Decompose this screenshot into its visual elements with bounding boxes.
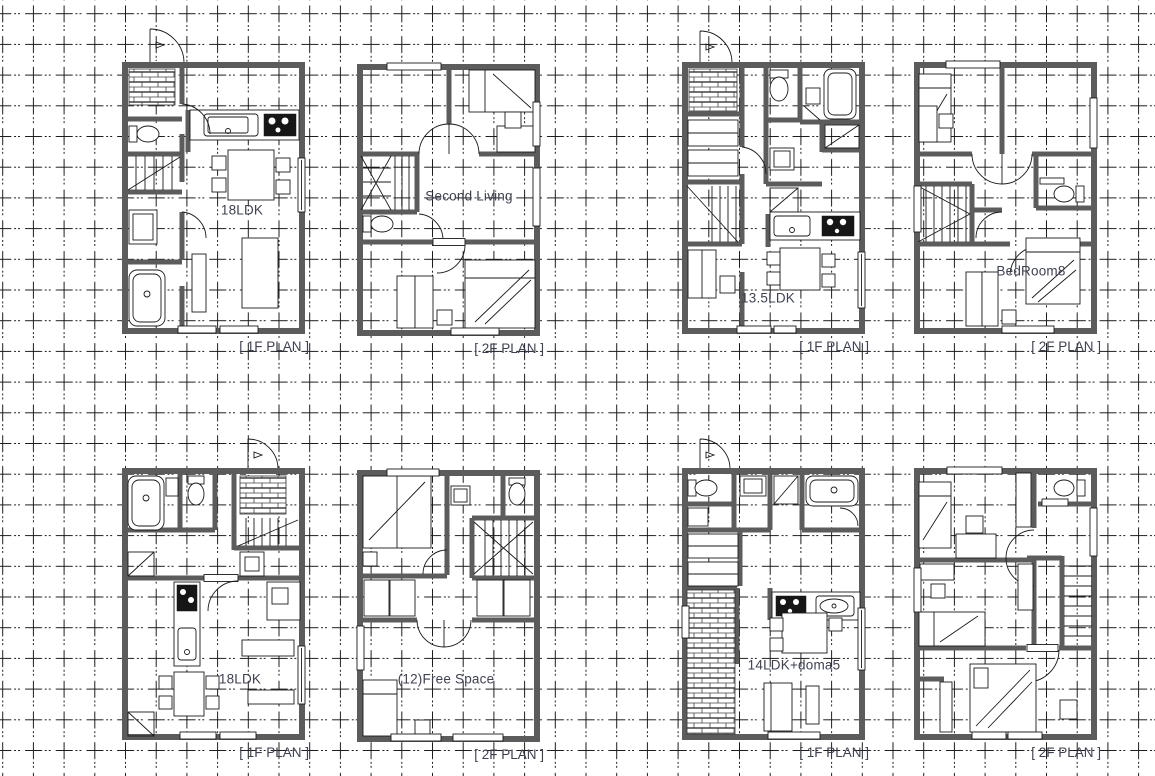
- toilet-icon: [770, 70, 788, 101]
- entry-tiles: [689, 69, 737, 111]
- kitchen-counter: [174, 582, 200, 666]
- room-label: Second Living: [425, 189, 512, 204]
- bed-icon: [919, 612, 985, 646]
- washbasin-icon: [740, 476, 766, 496]
- plan-caption: [ 1F PLAN ]: [799, 745, 869, 760]
- plan-caption: [ 1F PLAN ]: [239, 745, 309, 760]
- toilet-icon: [509, 478, 525, 505]
- closet-icon: [128, 552, 264, 576]
- room-label: 14LDK+doma5: [748, 658, 841, 673]
- closet-icon: [128, 712, 154, 736]
- floorplan-c-1f: 18LDK [ 1F PLAN ]: [122, 468, 305, 740]
- kitchen-counter: [190, 110, 299, 140]
- toilet-icon: [129, 126, 159, 142]
- floorplan-c-2f: (12)Free Space [ 2F PLAN ]: [357, 470, 540, 742]
- floorplan-d-1f: 14LDK+doma5 [ 1F PLAN ]: [682, 468, 865, 740]
- dining-table-icon: [770, 613, 842, 653]
- room-label: 18LDK: [221, 203, 263, 218]
- washbasin-icon: [129, 210, 157, 244]
- entry-tiles: [240, 476, 286, 514]
- floorplan-b-2f: BedRoom8 [ 2F PLAN ]: [914, 62, 1097, 334]
- closet-icon: [688, 534, 738, 586]
- double-doors: [419, 124, 479, 154]
- plan-caption: [ 2F PLAN ]: [474, 747, 544, 762]
- interior-doors: [423, 550, 447, 574]
- plan-caption: [ 2F PLAN ]: [1031, 745, 1101, 760]
- floorplan-drawing: [357, 470, 540, 742]
- washbasin-icon: [451, 486, 470, 505]
- closet-icon: [397, 276, 452, 328]
- toilet-icon: [188, 476, 204, 505]
- closet-icon: [774, 476, 798, 504]
- stairs-icon: [361, 156, 409, 210]
- double-doors: [972, 154, 1032, 184]
- bed-icon: [469, 70, 535, 112]
- entry-tiles: [129, 69, 175, 105]
- floorplan-a-1f: 18LDK [ 1F PLAN ]: [122, 62, 305, 334]
- doma-tiles: [687, 590, 735, 734]
- bed-icon: [363, 680, 430, 736]
- bathtub-icon: [128, 476, 178, 530]
- bathtub-icon: [804, 69, 856, 120]
- sofa-icon: [192, 238, 278, 312]
- cupboard-icon: [267, 582, 300, 620]
- floorplan-drawing: [914, 468, 1097, 740]
- toilet-icon: [1040, 178, 1084, 202]
- closet-icon: [920, 564, 1033, 610]
- dining-table-icon: [212, 150, 290, 200]
- floorplan-sheet: 18LDK [ 1F PLAN ]: [0, 0, 1155, 776]
- stove-icon: [264, 114, 296, 136]
- floorplan-drawing: [682, 468, 865, 740]
- floorplan-d-2f: [ 2F PLAN ]: [914, 468, 1097, 740]
- sofa-icon: [764, 683, 819, 731]
- stairs-icon: [918, 186, 970, 242]
- double-doors: [417, 620, 471, 647]
- plan-caption: [ 1F PLAN ]: [239, 339, 309, 354]
- stove-icon: [822, 216, 854, 236]
- stairs-icon: [238, 518, 298, 546]
- plan-caption: [ 1F PLAN ]: [799, 339, 869, 354]
- room-label: 13.5LDK: [741, 291, 795, 306]
- plan-caption: [ 2F PLAN ]: [1031, 339, 1101, 354]
- stairs-icon: [687, 186, 738, 242]
- bed-icon: [919, 482, 951, 548]
- floorplan-b-1f: 13.5LDK [ 1F PLAN ]: [682, 62, 865, 334]
- bed-icon: [465, 260, 535, 328]
- bathtub-icon: [806, 476, 858, 526]
- bed-icon: [970, 664, 1036, 732]
- room-label: (12)Free Space: [398, 672, 495, 687]
- stairs-icon: [1064, 566, 1092, 636]
- toilet-icon: [363, 214, 443, 240]
- room-label: 18LDK: [219, 672, 261, 687]
- desk-icon: [497, 112, 535, 152]
- dining-table-icon: [159, 672, 219, 716]
- closet-icon: [364, 580, 530, 616]
- kitchen-counter: [770, 212, 860, 240]
- stairs-icon: [474, 520, 533, 576]
- closet-icon: [966, 272, 1016, 326]
- stairs-icon: [128, 156, 180, 190]
- sliding-door: [204, 575, 238, 612]
- sliding-door: [433, 239, 465, 274]
- desk-icon: [956, 516, 996, 558]
- floorplan-a-2f: Second Living [ 2F PLAN ]: [357, 64, 540, 336]
- stove-icon: [177, 585, 197, 611]
- room-label: BedRoom8: [996, 264, 1065, 279]
- bed-icon: [363, 476, 431, 566]
- closet-icon: [1016, 473, 1031, 527]
- floorplan-drawing: [914, 62, 1097, 334]
- closet-icon: [688, 120, 738, 176]
- floorplan-drawing: [122, 62, 305, 334]
- bathtub-icon: [129, 270, 165, 326]
- plan-caption: [ 2F PLAN ]: [474, 341, 544, 356]
- dining-table-icon: [767, 248, 835, 290]
- closet-icon: [688, 250, 735, 298]
- floorplan-drawing: [122, 468, 305, 740]
